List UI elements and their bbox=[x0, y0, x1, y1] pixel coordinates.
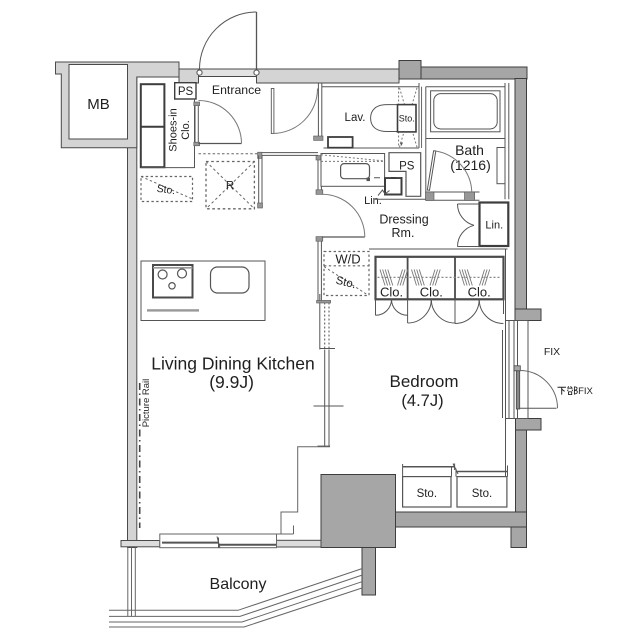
svg-text:Clo.: Clo. bbox=[420, 285, 443, 300]
svg-text:Clo.: Clo. bbox=[380, 285, 403, 300]
svg-text:Clo.: Clo. bbox=[180, 120, 192, 140]
svg-text:FIX: FIX bbox=[544, 346, 560, 358]
svg-text:Dressing: Dressing bbox=[379, 213, 428, 227]
svg-text:PS: PS bbox=[399, 161, 415, 173]
svg-text:(9.9J): (9.9J) bbox=[209, 372, 254, 392]
svg-text:Sto.: Sto. bbox=[399, 114, 415, 124]
svg-text:Bath: Bath bbox=[455, 142, 484, 158]
svg-text:Bedroom: Bedroom bbox=[390, 372, 459, 391]
svg-text:Sto.: Sto. bbox=[417, 488, 437, 500]
svg-text:Shoes-in: Shoes-in bbox=[168, 108, 180, 151]
svg-text:Lin.: Lin. bbox=[485, 220, 503, 232]
svg-text:Living Dining Kitchen: Living Dining Kitchen bbox=[151, 354, 314, 374]
svg-text:(4.7J): (4.7J) bbox=[401, 392, 443, 410]
svg-text:MB: MB bbox=[87, 96, 110, 113]
svg-text:Clo.: Clo. bbox=[468, 285, 491, 300]
svg-text:FIX: FIX bbox=[578, 386, 593, 397]
svg-text:R: R bbox=[226, 181, 234, 193]
svg-text:Sto.: Sto. bbox=[472, 488, 492, 500]
svg-text:(1216): (1216) bbox=[450, 157, 490, 173]
svg-text:PS: PS bbox=[178, 86, 194, 98]
svg-text:W/D: W/D bbox=[335, 252, 360, 267]
svg-text:Entrance: Entrance bbox=[212, 83, 261, 97]
svg-text:Rm.: Rm. bbox=[392, 226, 415, 240]
svg-text:Picture Rail: Picture Rail bbox=[141, 379, 152, 428]
svg-text:Lin.: Lin. bbox=[364, 195, 382, 207]
svg-text:Balcony: Balcony bbox=[210, 576, 267, 593]
svg-text:Lav.: Lav. bbox=[345, 112, 366, 124]
